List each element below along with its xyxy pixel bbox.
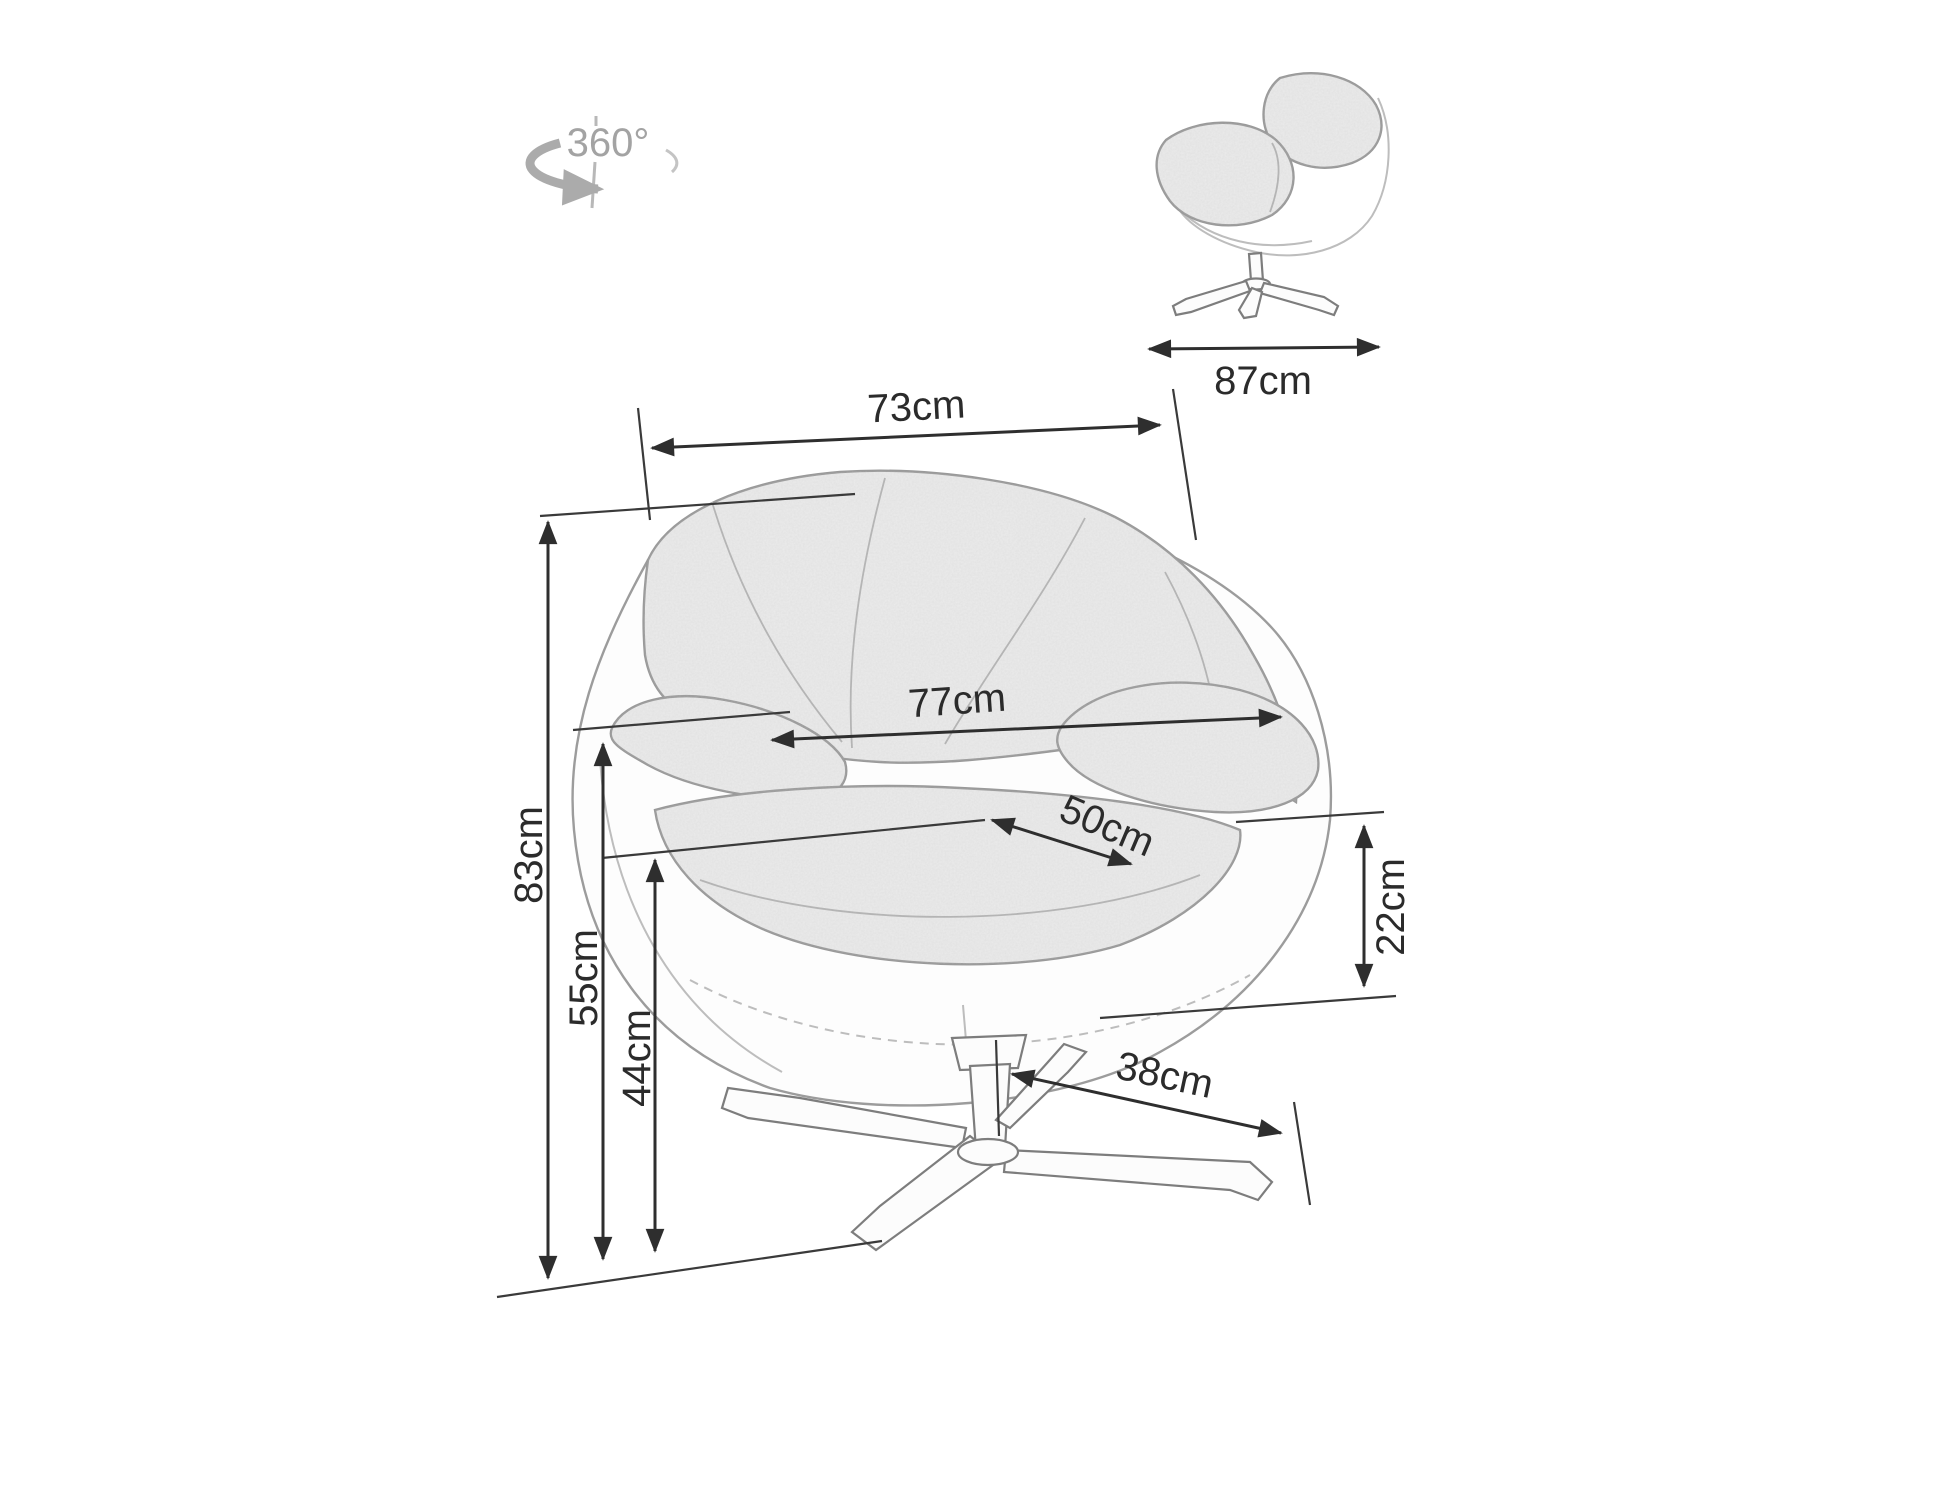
base-hub (958, 1139, 1018, 1165)
dim-arrow-overall-depth (1149, 347, 1379, 349)
dim-label-overall-depth: 87cm (1214, 359, 1312, 403)
dim-label-seat-edge-height: 22cm (1369, 858, 1413, 956)
dim-label-seat-height: 44cm (615, 1009, 659, 1107)
diagram-canvas: 360° (0, 0, 1946, 1489)
dim-label-armrest-height: 55cm (562, 929, 606, 1027)
floor-line (497, 1241, 882, 1297)
dim-label-overall-height: 83cm (507, 806, 551, 904)
dim-label-base-leg-span: 38cm (1112, 1044, 1217, 1107)
rotation-360-label: 360° (567, 121, 650, 165)
dim-label-overall-width: 73cm (866, 382, 966, 431)
rotation-arc-thin (666, 150, 677, 172)
gas-lift-column (970, 1064, 1010, 1150)
dim-label-backrest-width: 77cm (907, 676, 1008, 727)
chair-dimension-diagram: 360° (0, 0, 1946, 1489)
side-chair-base (1173, 253, 1338, 318)
rotation-360-icon: 360° (530, 116, 677, 208)
base-leg-front-right (1004, 1150, 1272, 1200)
